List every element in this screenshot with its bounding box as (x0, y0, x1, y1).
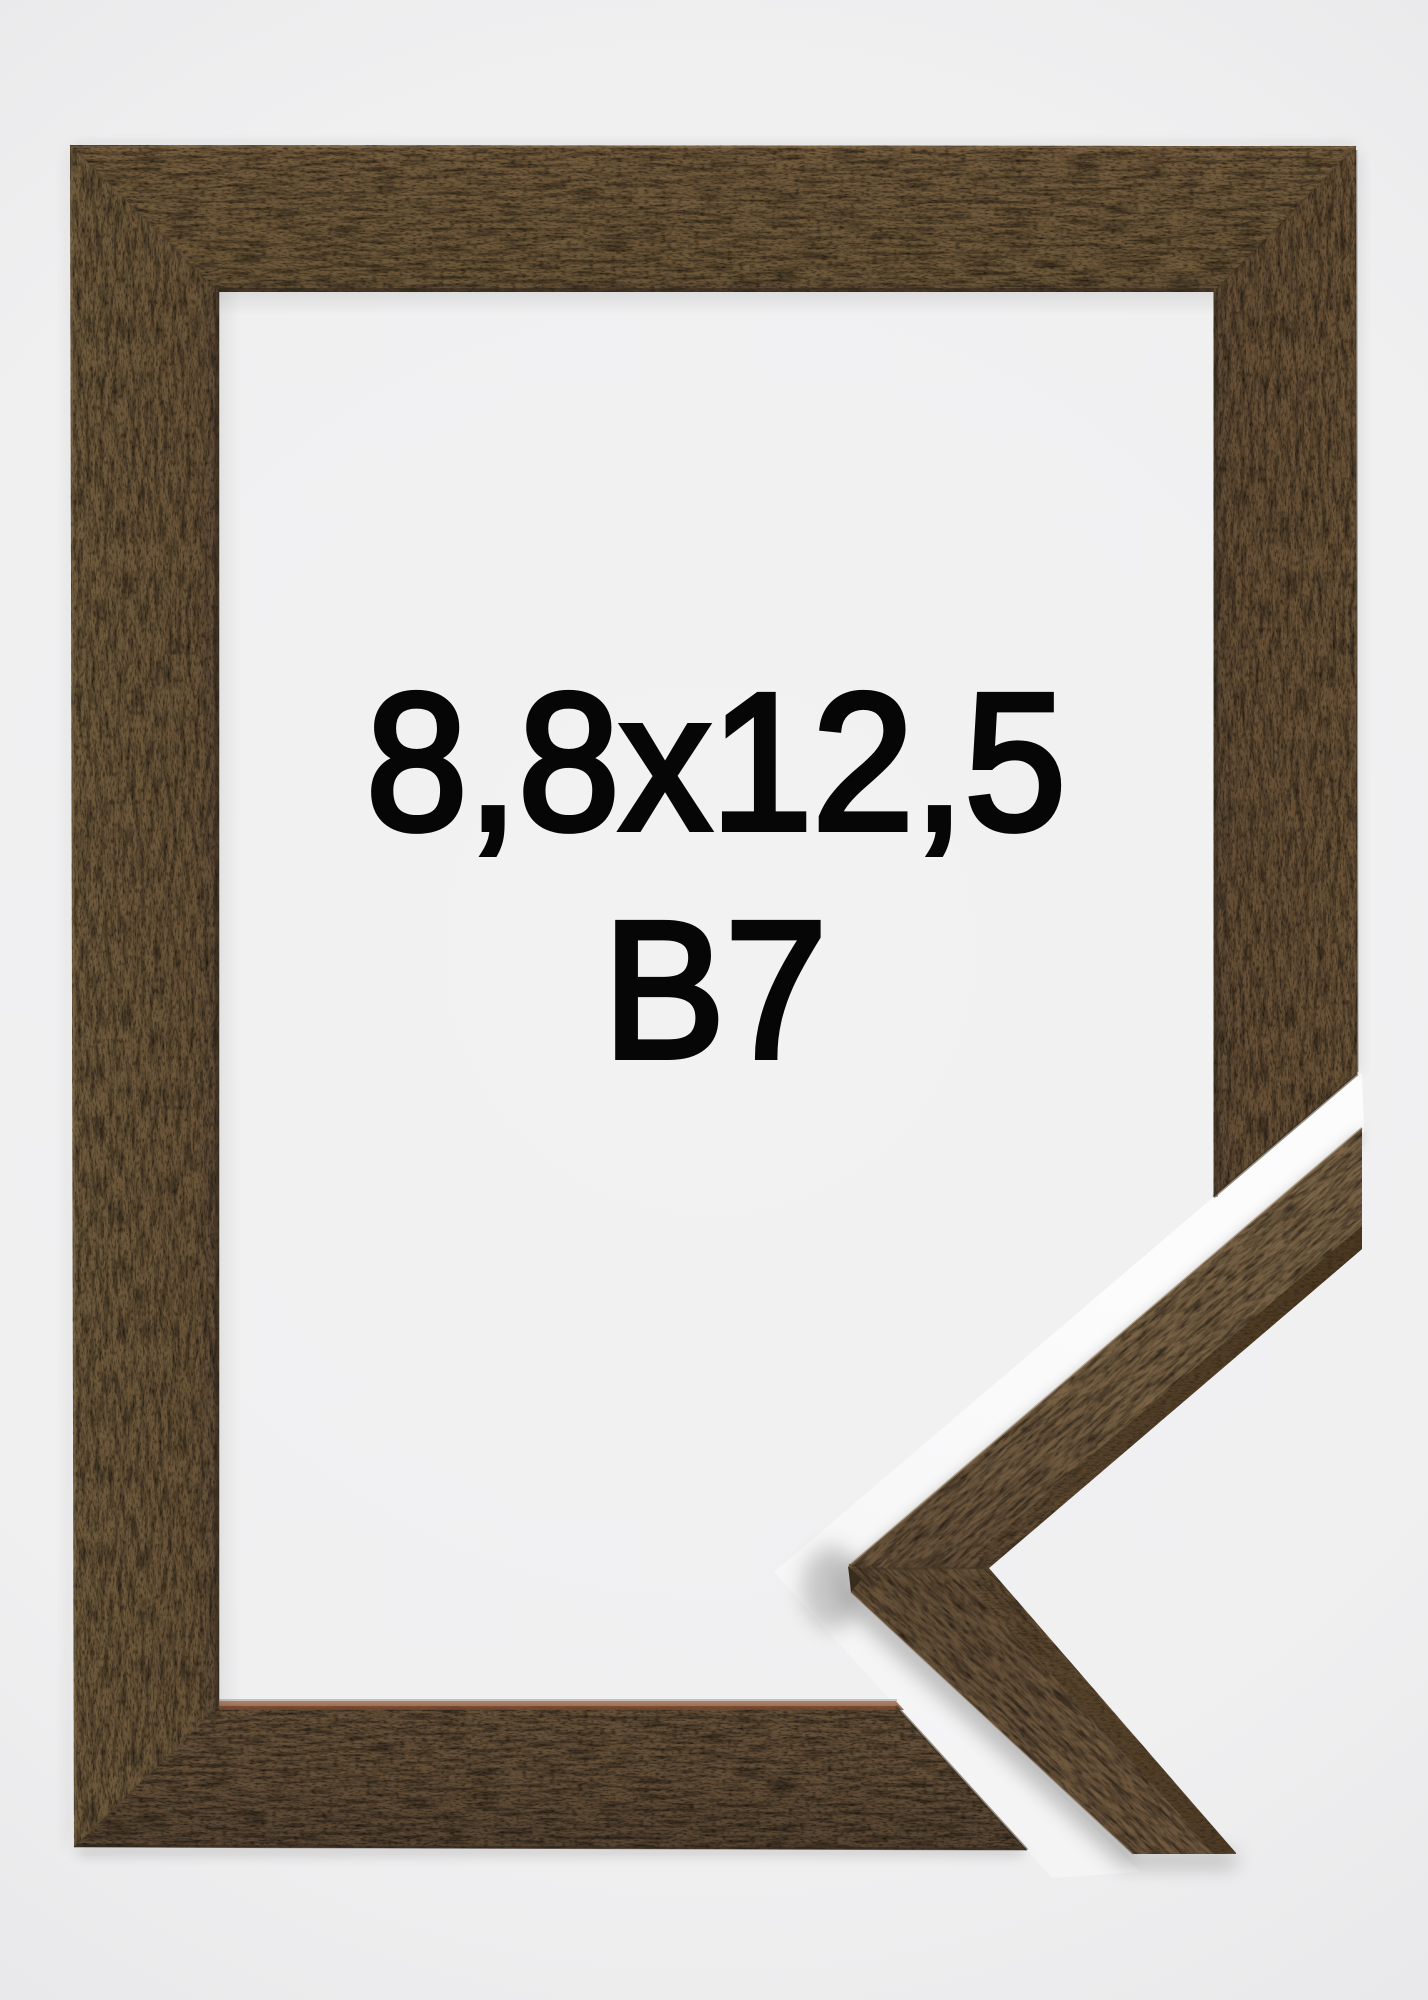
svg-text:B7: B7 (603, 881, 827, 1099)
svg-text:8,8x12,5: 8,8x12,5 (366, 653, 1066, 871)
